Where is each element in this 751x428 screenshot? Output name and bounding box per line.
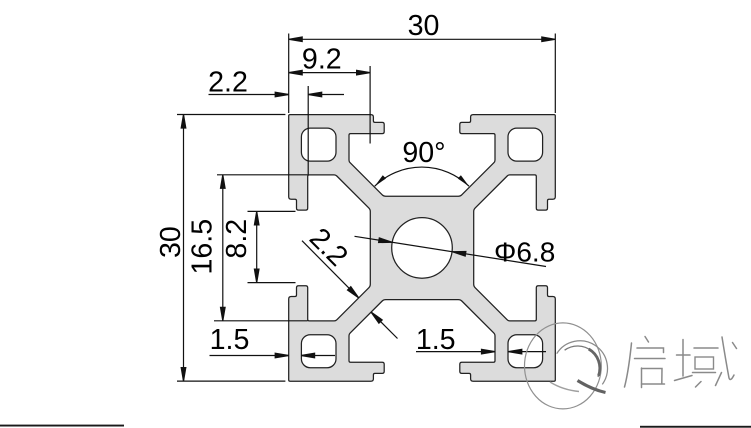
svg-text:16.5: 16.5: [186, 219, 218, 275]
svg-text:8.2: 8.2: [221, 219, 253, 259]
svg-text:1.5: 1.5: [210, 324, 250, 356]
svg-text:Φ6.8: Φ6.8: [494, 237, 555, 268]
svg-text:30: 30: [408, 10, 440, 42]
svg-text:2.2: 2.2: [208, 67, 248, 99]
svg-text:1.5: 1.5: [416, 324, 456, 356]
svg-text:9.2: 9.2: [302, 44, 342, 76]
svg-text:2.2: 2.2: [303, 222, 354, 273]
svg-text:90°: 90°: [402, 137, 445, 169]
svg-text:30: 30: [155, 226, 187, 258]
